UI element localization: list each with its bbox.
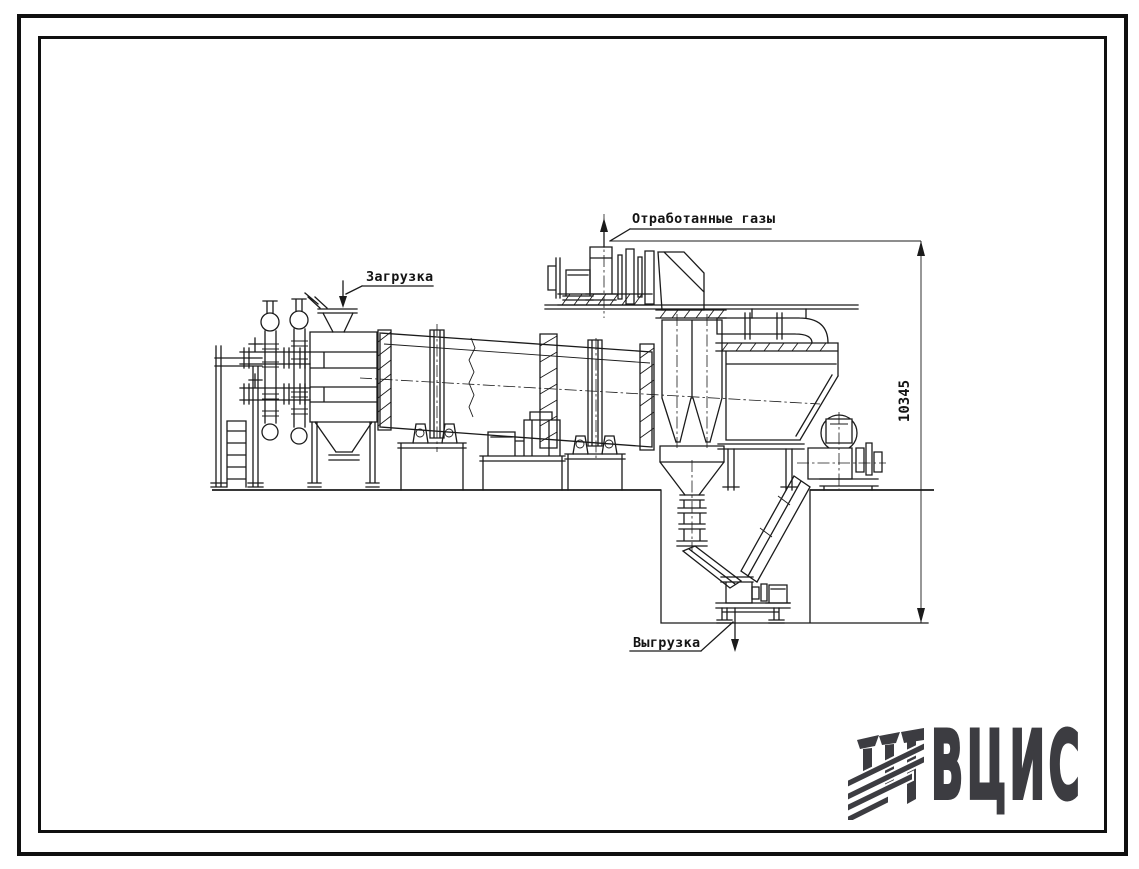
discharge-feeder [716, 577, 790, 623]
vcis-logo-text: ВЦИС [931, 720, 1083, 814]
dimension-value: 10345 [897, 380, 913, 422]
service-platform [211, 346, 263, 487]
exhaust-arrow [600, 218, 608, 232]
right-discharge-chute [741, 476, 810, 582]
drum-axis-centerline [360, 378, 820, 404]
drive-station [480, 412, 565, 490]
riding-ring-2 [588, 340, 602, 446]
shaft-couplings [618, 249, 654, 304]
unloading-label: Выгрузка [633, 635, 700, 651]
unloading-arrow [731, 639, 739, 652]
dimension-overall-height: 10345 [610, 241, 925, 623]
drum-supports [398, 324, 625, 490]
feed-funnel [305, 293, 357, 332]
feed-head-box [305, 293, 379, 487]
annotation-loading: Загрузка [339, 269, 433, 308]
feeder-motor [766, 585, 790, 603]
ladder [227, 421, 246, 487]
fan-motor [563, 270, 593, 300]
ground-lines [212, 490, 934, 623]
cyclone-separators [660, 314, 741, 588]
vcis-logo: ВЦИС [845, 720, 1085, 820]
annotation-exhaust-gases: Отработанные газы [610, 211, 775, 241]
loading-label: Загрузка [366, 269, 433, 285]
exhaust-gases-label: Отработанные газы [632, 211, 775, 227]
rotary-drum [360, 330, 820, 450]
elbow-duct [658, 252, 704, 310]
vcis-logo-icon [845, 724, 933, 820]
loading-arrow [339, 296, 347, 308]
burner-pipes [240, 299, 310, 444]
